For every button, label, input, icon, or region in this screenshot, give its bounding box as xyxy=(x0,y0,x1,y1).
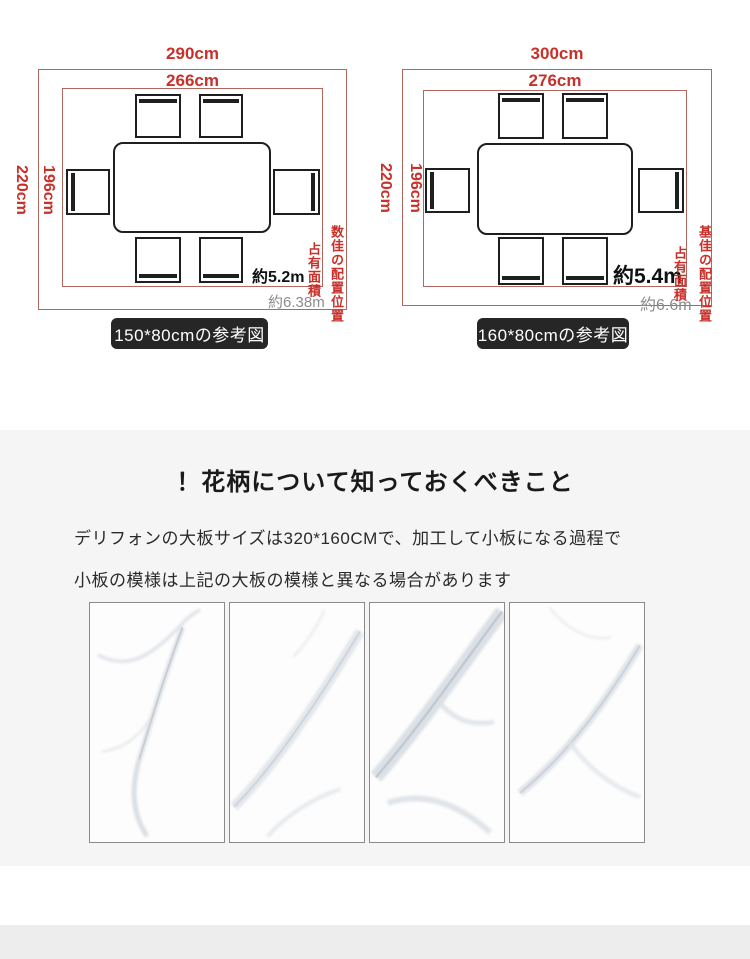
chair-left xyxy=(66,169,110,215)
chair-backrest xyxy=(71,173,75,211)
chair-backrest xyxy=(430,172,434,209)
floorplan-150x80: 290cm 266cm 220cm 196cm 約5.2m 約6.38m 占有面… xyxy=(10,44,355,362)
outer-height-label: 220cm xyxy=(376,158,394,218)
outer-height-label: 220cm xyxy=(12,160,30,220)
chair-backrest xyxy=(203,99,239,103)
chair-bottom-right xyxy=(199,237,243,283)
chair-backrest xyxy=(566,276,604,280)
dining-table xyxy=(477,143,633,235)
chair-backrest xyxy=(139,99,177,103)
chair-backrest xyxy=(675,172,679,209)
dining-table xyxy=(113,142,271,233)
inner-width-label: 276cm xyxy=(423,71,687,91)
chair-backrest xyxy=(203,274,239,278)
chair-bottom-left xyxy=(498,237,544,285)
outer-width-label: 290cm xyxy=(38,44,347,64)
info-line-1: デリフォンの大板サイズは320*160CMで、加工して小板になる過程で xyxy=(74,524,622,549)
chair-top-left xyxy=(135,94,181,138)
inner-height-label: 196cm xyxy=(39,160,57,220)
pattern-info-section: ！花柄について知っておくべきこと デリフォンの大板サイズは320*160CMで、… xyxy=(0,430,750,866)
marble-slab-3 xyxy=(369,602,505,843)
size-reference-pill: 160*80cmの参考図 xyxy=(477,318,629,349)
marble-slab-row xyxy=(89,602,645,843)
info-title: ！花柄について知っておくべきこと xyxy=(0,462,750,497)
chair-bottom-right xyxy=(562,237,608,285)
marble-slab-4 xyxy=(509,602,645,843)
chair-backrest xyxy=(566,98,604,102)
chair-top-left xyxy=(498,93,544,139)
placement-position-caption: 数佳の配置位置 xyxy=(329,225,343,323)
chair-top-right xyxy=(199,94,243,138)
footer-bar xyxy=(0,925,750,959)
chair-backrest xyxy=(311,173,315,211)
info-line-2: 小板の模様は上記の大板の模様と異なる場合があります xyxy=(74,566,512,591)
size-reference-pill: 150*80cmの参考図 xyxy=(111,318,268,349)
chair-backrest xyxy=(502,276,540,280)
chair-right xyxy=(273,169,320,215)
placement-position-caption: 基佳の配置位置 xyxy=(697,225,711,323)
marble-slab-2 xyxy=(229,602,365,843)
chair-right xyxy=(638,168,684,213)
chair-top-right xyxy=(562,93,608,139)
floorplan-160x80: 300cm 276cm 220cm 196cm 約5.4m 約6.6m 占有面積… xyxy=(373,44,718,362)
chair-bottom-left xyxy=(135,237,181,283)
inner-height-label: 196cm xyxy=(406,158,424,218)
chair-backrest xyxy=(139,274,177,278)
chair-left xyxy=(425,168,470,213)
outer-width-label: 300cm xyxy=(402,44,712,64)
occupied-area-caption: 占有面積 xyxy=(672,246,686,302)
length-note: 約5.2m xyxy=(252,263,304,287)
chair-backrest xyxy=(502,98,540,102)
marble-slab-1 xyxy=(89,602,225,843)
occupied-area-caption: 占有面積 xyxy=(306,242,320,298)
